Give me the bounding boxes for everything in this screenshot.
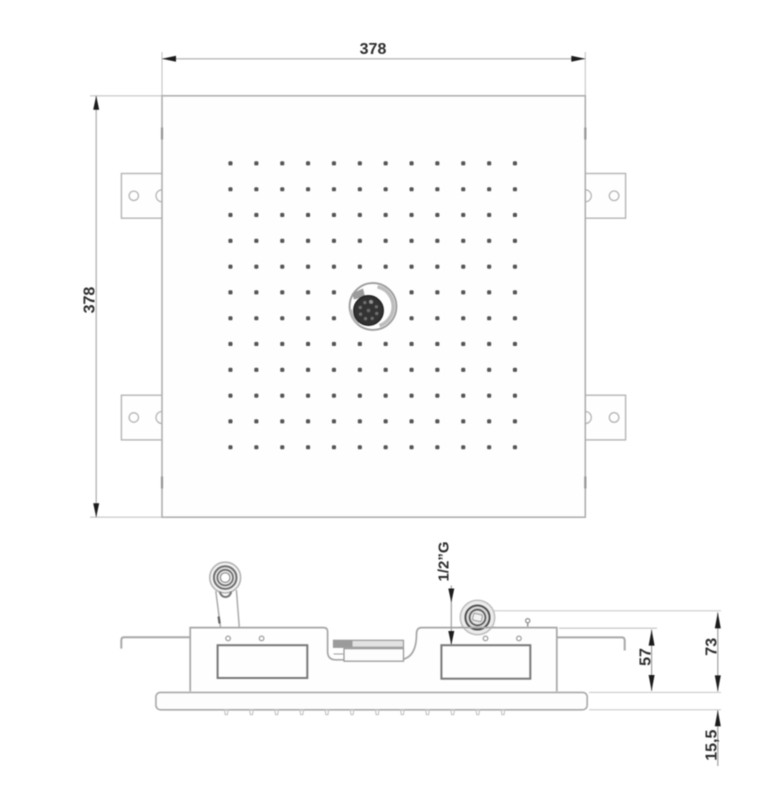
svg-text:15,5: 15,5	[703, 730, 720, 761]
svg-text:1/2”G: 1/2”G	[436, 541, 453, 581]
svg-text:378: 378	[82, 287, 99, 314]
svg-text:73: 73	[703, 638, 720, 656]
svg-text:378: 378	[360, 41, 387, 58]
svg-text:57: 57	[638, 648, 655, 666]
